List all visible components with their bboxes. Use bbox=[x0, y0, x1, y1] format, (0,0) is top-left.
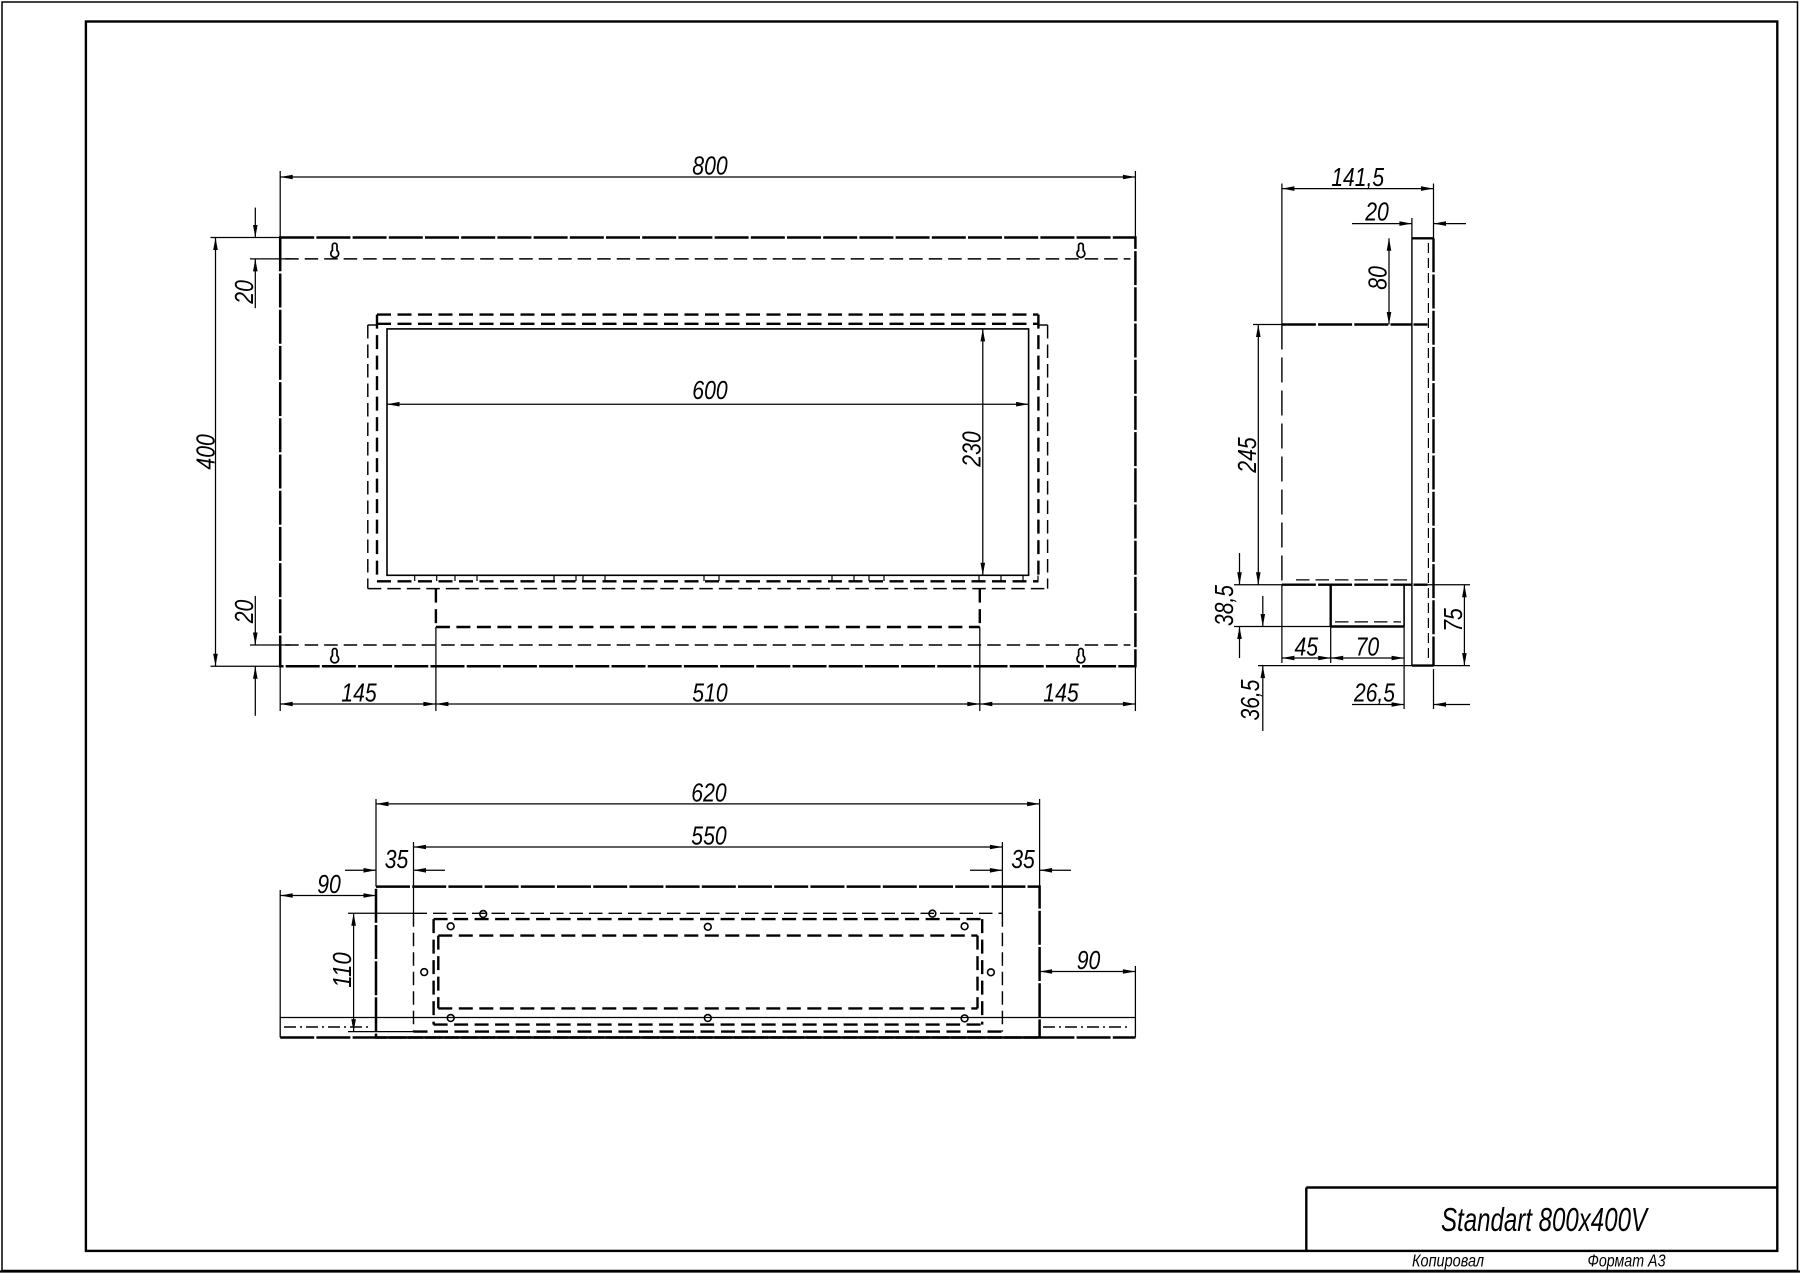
svg-text:38,5: 38,5 bbox=[1209, 585, 1239, 626]
svg-text:80: 80 bbox=[1363, 266, 1393, 290]
svg-text:245: 245 bbox=[1232, 437, 1262, 474]
svg-text:Формат А3: Формат А3 bbox=[1588, 1251, 1666, 1271]
svg-text:400: 400 bbox=[191, 434, 221, 470]
svg-text:145: 145 bbox=[341, 678, 377, 708]
svg-text:800: 800 bbox=[692, 151, 728, 181]
svg-text:36,5: 36,5 bbox=[1235, 679, 1265, 720]
svg-text:90: 90 bbox=[317, 869, 341, 899]
svg-text:20: 20 bbox=[1364, 196, 1389, 226]
svg-text:141,5: 141,5 bbox=[1331, 162, 1384, 192]
svg-text:600: 600 bbox=[692, 375, 728, 405]
svg-text:20: 20 bbox=[229, 280, 259, 305]
svg-text:75: 75 bbox=[1438, 608, 1468, 632]
svg-text:Копировал: Копировал bbox=[1412, 1251, 1484, 1271]
svg-text:230: 230 bbox=[956, 431, 986, 468]
svg-text:550: 550 bbox=[691, 821, 727, 851]
svg-text:35: 35 bbox=[385, 844, 409, 874]
svg-text:20: 20 bbox=[229, 599, 259, 624]
svg-text:110: 110 bbox=[327, 952, 357, 988]
svg-text:Standart 800x400V: Standart 800x400V bbox=[1441, 1201, 1649, 1238]
svg-text:70: 70 bbox=[1356, 632, 1380, 662]
svg-text:145: 145 bbox=[1043, 678, 1079, 708]
svg-text:45: 45 bbox=[1295, 632, 1319, 662]
svg-text:510: 510 bbox=[692, 678, 728, 708]
svg-text:620: 620 bbox=[691, 778, 727, 808]
svg-text:35: 35 bbox=[1011, 844, 1035, 874]
svg-text:26,5: 26,5 bbox=[1353, 677, 1395, 707]
svg-text:90: 90 bbox=[1077, 945, 1101, 975]
